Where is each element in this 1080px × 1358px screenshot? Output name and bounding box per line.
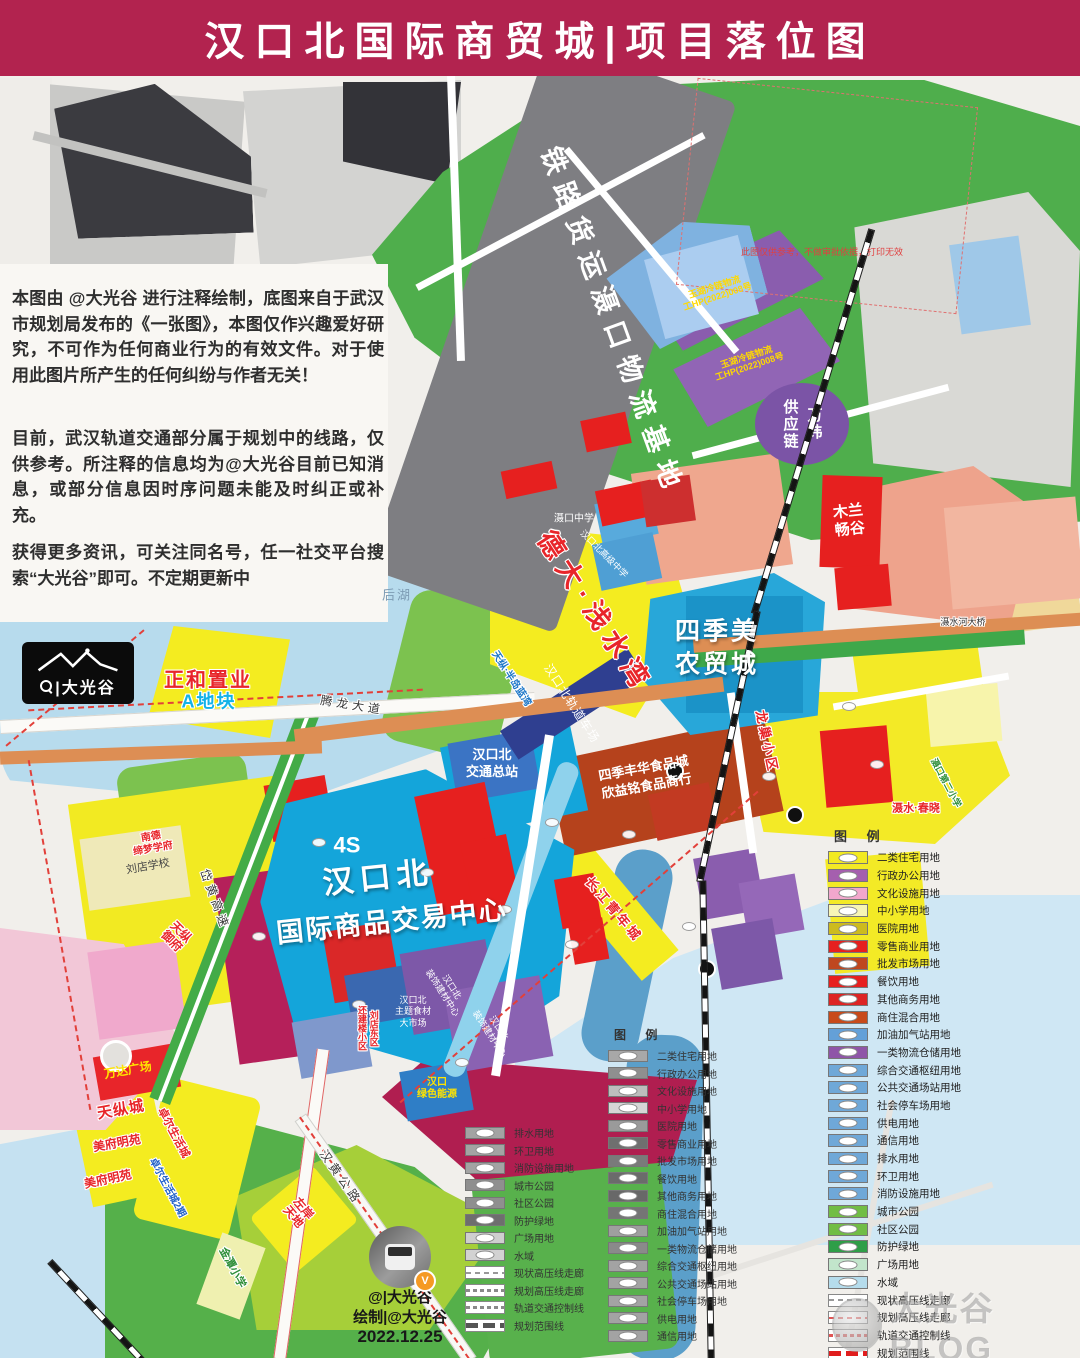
legend-item: 城市公园 (828, 1203, 1078, 1221)
legend-item: 商住混合用地 (828, 1008, 1078, 1026)
map-zone-school (926, 683, 1003, 747)
legend-item: 排水用地 (828, 1150, 1078, 1168)
legend-swatch-code (839, 959, 858, 968)
legend-label: 批发市场用地 (657, 1153, 717, 1168)
map: 供应链 万纬 (0, 76, 1080, 1358)
map-zone-retail (834, 564, 891, 611)
legend-swatch (828, 1258, 868, 1271)
legend-label: 广场用地 (877, 1257, 919, 1272)
legend-label: 社区公园 (877, 1222, 919, 1237)
watermark: 大光谷BLOG (832, 1282, 1080, 1358)
parcel-code-badge (252, 932, 266, 941)
legend-item: 医院用地 (828, 920, 1078, 938)
legend-item: 行政办公用地 (608, 1065, 798, 1083)
parcel-code-badge (312, 838, 326, 847)
legend-swatch-code (839, 995, 858, 1004)
parcel-code-badge (870, 760, 884, 769)
legend-swatch (465, 1162, 505, 1174)
legend-swatch-code (839, 1172, 858, 1181)
legend-label: 社会停车场用地 (877, 1098, 951, 1113)
legend-swatch-code (839, 924, 858, 933)
legend-item: 行政办公用地 (828, 867, 1078, 885)
metro-station-icon (786, 806, 804, 824)
legend-swatch-code (839, 1136, 858, 1145)
legend-swatch (465, 1144, 505, 1156)
legend-swatch (828, 1064, 868, 1077)
zone-mulan (819, 475, 882, 569)
legend-swatch (828, 1240, 868, 1253)
legend-label: 医院用地 (657, 1118, 697, 1133)
legend-swatch-code (839, 1225, 858, 1234)
legend-label: 加油加气站用地 (877, 1027, 951, 1042)
legend-swatch-code (839, 871, 858, 880)
legend-swatch (828, 1028, 868, 1041)
legend-label: 餐饮用地 (877, 974, 919, 989)
road-roundabout (100, 1040, 132, 1072)
legend-item: 通信用地 (828, 1132, 1078, 1150)
legend-swatch-code (839, 1048, 858, 1057)
legend-swatch (465, 1127, 505, 1139)
legend-swatch-code (839, 1013, 858, 1022)
legend-label: 批发市场用地 (877, 956, 940, 971)
legend-label: 中小学用地 (657, 1101, 707, 1116)
legend-swatch (608, 1085, 648, 1097)
daguanggu-logo: |大光谷 (22, 642, 134, 704)
parcel-code-badge (842, 702, 856, 711)
legend-label: 社区公园 (514, 1195, 554, 1210)
legend-gray-left: 排水用地环卫用地消防设施用地城市公园社区公园防护绿地广场用地水域现状高压线走廊规… (465, 1124, 640, 1334)
legend-swatch (828, 940, 868, 953)
legend-title: 图 例 (614, 1026, 798, 1043)
legend-swatch (828, 1134, 868, 1147)
legend-swatch-code (839, 1083, 858, 1092)
legend-label: 供电用地 (877, 1116, 919, 1131)
legend-item: 现状高压线走廊 (465, 1264, 640, 1282)
verified-badge: V (414, 1270, 436, 1292)
legend-label: 消防设施用地 (877, 1186, 940, 1201)
map-canvas: 供应链 万纬 (0, 0, 1080, 1358)
parcel-code-badge (682, 922, 696, 931)
tram-icon (832, 1298, 882, 1352)
legend-item: 社会停车场用地 (828, 1097, 1078, 1115)
map-zone-school (79, 825, 190, 910)
legend-label: 其他商务用地 (657, 1188, 717, 1203)
legend-label: 零售商业用地 (877, 939, 940, 954)
parcel-code-badge (498, 905, 512, 914)
legend-swatch (828, 1011, 868, 1024)
legend-swatch (828, 904, 868, 917)
legend-item: 水域 (465, 1247, 640, 1265)
legend-item: 规划范围线 (465, 1317, 640, 1335)
legend-swatch-code (839, 942, 858, 951)
legend-item: 广场用地 (465, 1229, 640, 1247)
legend-item: 零售商业用地 (828, 937, 1078, 955)
legend-label: 一类物流仓储用地 (657, 1241, 737, 1256)
legend-item: 二类住宅用地 (828, 849, 1078, 867)
legend-item: 消防设施用地 (465, 1159, 640, 1177)
legend-label: 其他商务用地 (877, 992, 940, 1007)
legend-item: 城市公园 (465, 1177, 640, 1195)
legend-item: 公共交通场站用地 (828, 1079, 1078, 1097)
legend-item: 消防设施用地 (828, 1185, 1078, 1203)
legend-label: 社会停车场用地 (657, 1293, 727, 1308)
legend-label: 行政办公用地 (657, 1066, 717, 1081)
legend-label: 城市公园 (514, 1178, 554, 1193)
legend-label: 供电用地 (657, 1311, 697, 1326)
tram-icon (385, 1244, 415, 1270)
legend-label: 商住混合用地 (657, 1206, 717, 1221)
legend-label: 防护绿地 (877, 1239, 919, 1254)
legend-swatch (828, 1205, 868, 1218)
legend-swatch (608, 1050, 648, 1062)
legend-swatch-code (619, 1104, 638, 1113)
wanwei-label-col1: 供应链 (780, 399, 801, 450)
legend-item: 规划高压线走廊 (465, 1282, 640, 1300)
parcel-code-badge (352, 1000, 366, 1009)
legend-item: 防护绿地 (828, 1238, 1078, 1256)
legend-label: 文化设施用地 (657, 1083, 717, 1098)
legend-swatch (828, 851, 868, 864)
legend-swatch-code (839, 1242, 858, 1251)
legend-swatch-code (839, 1066, 858, 1075)
legend-label: 排水用地 (514, 1125, 554, 1140)
legend-swatch-code (476, 1198, 495, 1207)
legend-item: 社区公园 (828, 1220, 1078, 1238)
legend-item: 文化设施用地 (608, 1082, 798, 1100)
page: 汉口北国际商贸城|项目落位图 (0, 0, 1080, 1358)
legend-swatch (608, 1067, 648, 1079)
legend-label: 餐饮用地 (657, 1171, 697, 1186)
credit-author: 绘制|@大光谷 (318, 1308, 482, 1328)
legend-swatch (828, 975, 868, 988)
parcel-code-badge (762, 772, 776, 781)
disclaimer-paragraph-3: 获得更多资讯，可关注同名号，任一社交平台搜索“大光谷”即可。不定期更新中 (12, 540, 384, 591)
legend-item: 加油加气站用地 (828, 1026, 1078, 1044)
legend-swatch-code (839, 1101, 858, 1110)
watermark-text: 大光谷BLOG (890, 1282, 1080, 1358)
author-credit: V @|大光谷 绘制|@大光谷 2022.12.25 (318, 1226, 482, 1347)
legend-item: 环卫用地 (465, 1142, 640, 1160)
legend-item: 文化设施用地 (828, 884, 1078, 902)
map-zone-logistics (711, 918, 783, 990)
legend-swatch-code (476, 1128, 495, 1137)
credit-handle: @|大光谷 (318, 1288, 482, 1308)
legend-swatch (828, 1081, 868, 1094)
metro-station-icon (666, 762, 684, 780)
legend-item: 供电用地 (828, 1114, 1078, 1132)
legend-swatch (465, 1214, 505, 1226)
legend-swatch-code (619, 1069, 638, 1078)
legend-label: 公共交通场站用地 (657, 1276, 737, 1291)
legend-item: 中小学用地 (828, 902, 1078, 920)
mountain-icon (34, 648, 122, 672)
legend-swatch (828, 1187, 868, 1200)
legend-swatch-code (619, 1086, 638, 1095)
legend-label: 中小学用地 (877, 903, 930, 918)
legend-swatch (828, 1046, 868, 1059)
legend-item: 社区公园 (465, 1194, 640, 1212)
legend-item: 批发市场用地 (828, 955, 1078, 973)
legend-title: 图 例 (834, 826, 1078, 845)
legend-swatch (828, 1152, 868, 1165)
legend-label: 零售商业用地 (657, 1136, 717, 1151)
legend-item: 二类住宅用地 (608, 1047, 798, 1065)
app-header: 汉口北国际商贸城|项目落位图 (0, 0, 1080, 76)
legend-swatch (828, 869, 868, 882)
legend-swatch (608, 1102, 648, 1114)
legend-item: 广场用地 (828, 1256, 1078, 1274)
planning-boundary (676, 78, 978, 314)
legend-item: 综合交通枢纽用地 (828, 1061, 1078, 1079)
legend-label: 通信用地 (657, 1328, 697, 1343)
parcel-code-badge (622, 830, 636, 839)
legend-label: 消防设施用地 (514, 1160, 574, 1175)
legend-label: 排水用地 (877, 1151, 919, 1166)
disclaimer-paragraph-2: 目前，武汉轨道交通部分属于规划中的线路，仅供参考。所注释的信息均为@大光谷目前已… (12, 426, 384, 528)
legend-swatch (828, 1099, 868, 1112)
legend-label: 综合交通枢纽用地 (657, 1258, 737, 1273)
legend-item: 其他商务用地 (828, 991, 1078, 1009)
map-zone-culture (87, 940, 186, 1039)
legend-item: 一类物流仓储用地 (828, 1044, 1078, 1062)
legend-swatch-code (476, 1181, 495, 1190)
legend-label: 环卫用地 (514, 1143, 554, 1158)
parcel-code-badge (420, 868, 434, 877)
legend-swatch-code (619, 1051, 638, 1060)
legend-swatch-code (839, 1189, 858, 1198)
map-zone-mixed (944, 496, 1080, 609)
legend-label: 环卫用地 (877, 1169, 919, 1184)
legend-item: 中小学用地 (608, 1100, 798, 1118)
page-title: 汉口北国际商贸城|项目落位图 (204, 9, 875, 67)
legend-swatch-code (839, 1119, 858, 1128)
legend-label: 二类住宅用地 (657, 1048, 717, 1063)
legend-color: 图 例二类住宅用地行政办公用地文化设施用地中小学用地医院用地零售商业用地批发市场… (828, 826, 1078, 1358)
legend-swatch (828, 957, 868, 970)
legend-swatch-code (839, 906, 858, 915)
logo-text: |大光谷 (55, 674, 115, 698)
legend-label: 城市公园 (877, 1204, 919, 1219)
legend-swatch-code (839, 1154, 858, 1163)
map-zone (292, 1010, 373, 1079)
legend-label: 综合交通枢纽用地 (877, 1063, 961, 1078)
legend-swatch-code (839, 1030, 858, 1039)
legend-swatch-code (839, 853, 858, 862)
legend-swatch (828, 1170, 868, 1183)
legend-swatch-code (839, 889, 858, 898)
legend-label: 加油加气站用地 (657, 1223, 727, 1238)
disclaimer-paragraph-1: 本图由 @大光谷 进行注释绘制，底图来自于武汉市规划局发布的《一张图》，本图仅作… (12, 286, 384, 388)
legend-swatch-code (476, 1146, 495, 1155)
legend-item: 餐饮用地 (828, 973, 1078, 991)
legend-label: 通信用地 (877, 1133, 919, 1148)
legend-label: 行政办公用地 (877, 868, 940, 883)
legend-swatch-code (476, 1216, 495, 1225)
legend-swatch (828, 1117, 868, 1130)
legend-swatch (828, 993, 868, 1006)
legend-swatch-code (839, 977, 858, 986)
legend-label: 文化设施用地 (877, 886, 940, 901)
legend-label: 规划范围线 (514, 1318, 564, 1333)
legend-swatch (828, 922, 868, 935)
legend-label: 一类物流仓储用地 (877, 1045, 961, 1060)
legend-label: 规划高压线走廊 (514, 1283, 584, 1298)
legend-item: 轨道交通控制线 (465, 1299, 640, 1317)
search-icon (40, 680, 52, 692)
map-zone-retail (640, 475, 696, 528)
legend-label: 二类住宅用地 (877, 850, 940, 865)
parcel-code-badge (545, 818, 559, 827)
legend-item: 环卫用地 (828, 1167, 1078, 1185)
legend-swatch-code (839, 1207, 858, 1216)
legend-label: 公共交通场站用地 (877, 1080, 961, 1095)
legend-item: 防护绿地 (465, 1212, 640, 1230)
legend-swatch (465, 1197, 505, 1209)
legend-swatch (828, 1223, 868, 1236)
legend-swatch-code (476, 1163, 495, 1172)
legend-swatch (828, 887, 868, 900)
parcel-code-badge (455, 1058, 469, 1067)
legend-swatch-code (839, 1260, 858, 1269)
legend-label: 广场用地 (514, 1230, 554, 1245)
legend-label: 商住混合用地 (877, 1010, 940, 1025)
legend-label: 医院用地 (877, 921, 919, 936)
legend-label: 现状高压线走廊 (514, 1265, 584, 1280)
legend-item: 排水用地 (465, 1124, 640, 1142)
legend-label: 水域 (514, 1248, 534, 1263)
legend-label: 防护绿地 (514, 1213, 554, 1228)
credit-date: 2022.12.25 (318, 1327, 482, 1347)
legend-swatch (465, 1179, 505, 1191)
legend-label: 轨道交通控制线 (514, 1300, 584, 1315)
